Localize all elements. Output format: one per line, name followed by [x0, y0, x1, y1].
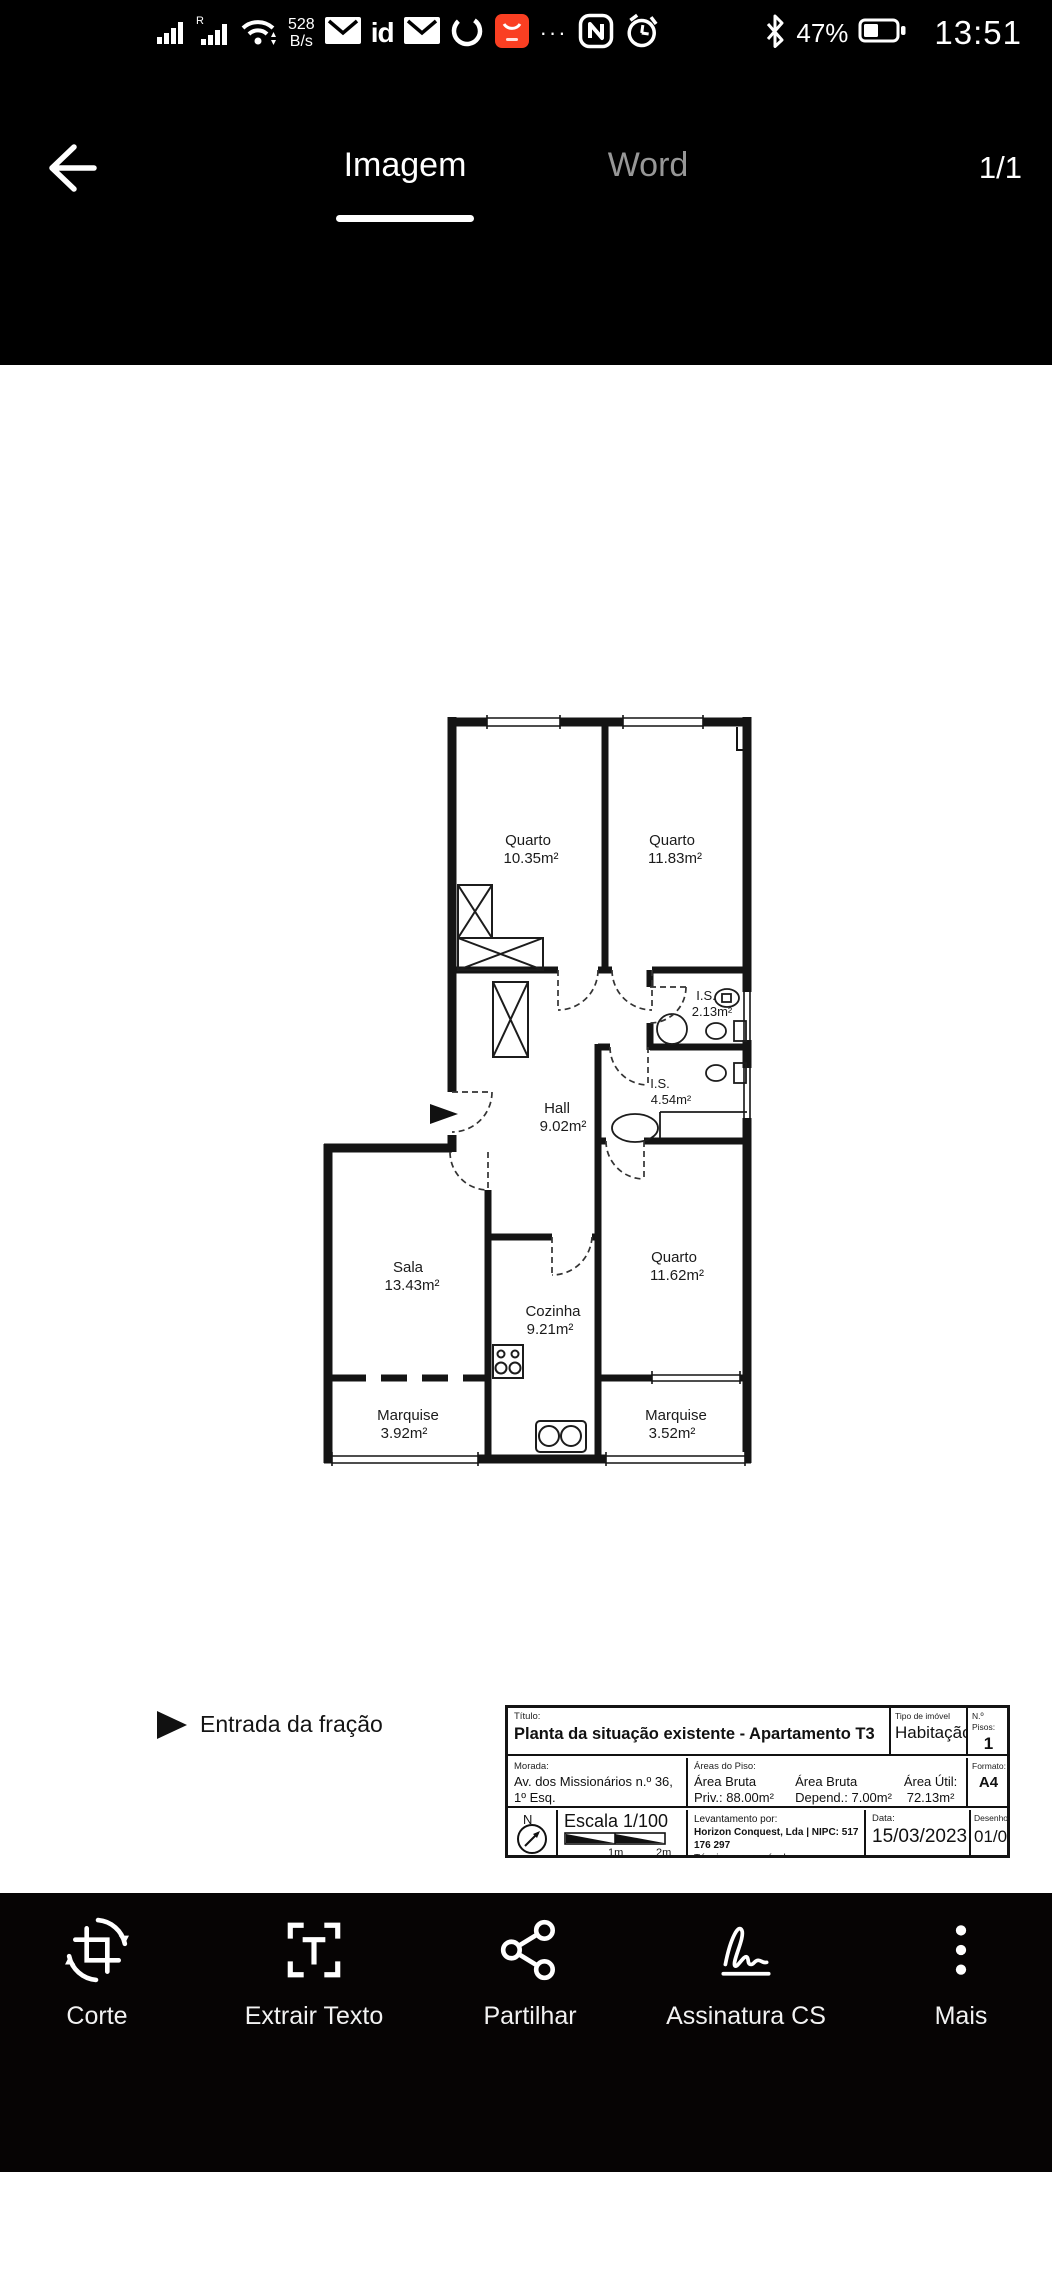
nfc-icon: [578, 13, 614, 54]
extract-text-button[interactable]: Extrair Texto: [209, 1917, 419, 2031]
crop-rotate-icon: [64, 1917, 130, 1983]
svg-text:R: R: [196, 15, 204, 27]
android-navigation-bar: [0, 2172, 1052, 2276]
entrance-legend-label: Entrada da fração: [200, 1711, 383, 1738]
crop-button[interactable]: Corte: [0, 1917, 202, 2031]
plan-title: Planta da situação existente - Apartamen…: [514, 1724, 884, 1744]
entrance-legend-icon: [155, 1710, 189, 1740]
data-cell: Data: 15/03/2023: [866, 1810, 971, 1856]
signature-icon: [713, 1917, 779, 1983]
title-block: Título: Planta da situação existente - A…: [505, 1705, 1010, 1858]
back-button[interactable]: [44, 140, 100, 201]
room-area: 9.21m²: [527, 1321, 574, 1338]
share-button[interactable]: Partilhar: [425, 1917, 635, 2031]
scale-text: Escala 1/100: [564, 1812, 680, 1831]
svg-text:2m: 2m: [656, 1847, 671, 1856]
more-notifications-icon: ···: [540, 20, 568, 46]
levantamento-cell: Levantamento por: Horizon Conquest, Lda …: [688, 1810, 866, 1856]
formato-cell: Formato: A4: [968, 1758, 1010, 1808]
room-area: 3.52m²: [649, 1425, 696, 1442]
room-label: Hall: [544, 1100, 570, 1117]
tab-imagem[interactable]: Imagem: [315, 146, 495, 185]
areas-cell: Áreas do Piso: Área BrutaPriv.: 88.00m² …: [688, 1758, 968, 1808]
id-app-icon: id: [371, 17, 394, 49]
active-tab-underline: [336, 215, 474, 222]
area-bruta-priv: Área BrutaPriv.: 88.00m²: [694, 1774, 795, 1806]
room-label: Quarto: [505, 832, 551, 849]
more-dots-icon: [928, 1917, 994, 1983]
more-button[interactable]: Mais: [856, 1917, 1052, 2031]
alarm-icon: [624, 13, 660, 54]
status-bar: R 528 B/s id: [0, 0, 1052, 66]
room-label: I.S.: [650, 1076, 670, 1091]
scale-bar: 1m 2m: [564, 1831, 682, 1856]
titulo-cell: Título: Planta da situação existente - A…: [508, 1708, 891, 1756]
app-header: R 528 B/s id: [0, 0, 1052, 365]
tipo-imovel-cell: Tipo de imóvel Habitação: [891, 1708, 968, 1756]
morada-cell: Morada: Av. dos Missionários n.º 36, 1º …: [508, 1758, 688, 1808]
clock-text: 13:51: [934, 14, 1022, 52]
data-rate: 528 B/s: [288, 16, 315, 50]
room-area: 3.92m²: [381, 1425, 428, 1442]
wifi-icon: [240, 15, 278, 52]
room-area: 10.35m²: [503, 850, 558, 867]
sync-icon: [450, 14, 484, 53]
entrance-arrow-icon: [430, 1104, 458, 1124]
back-arrow-icon: [44, 140, 100, 196]
escala-cell: Escala 1/100 1m 2m: [558, 1810, 688, 1856]
signal-icon: [156, 15, 186, 52]
aliexpress-app-icon: [494, 13, 530, 54]
bluetooth-icon: [764, 14, 786, 53]
mail-icon: [325, 17, 361, 49]
room-area: 11.83m²: [648, 850, 702, 867]
signature-button[interactable]: Assinatura CS: [641, 1917, 851, 2031]
signal2-roaming-icon: R: [196, 14, 230, 53]
north-cell: N: [508, 1810, 558, 1856]
north-compass-icon: N: [509, 1811, 555, 1856]
room-area: 13.43m²: [384, 1277, 439, 1294]
area-util: Área Útil:72.13m²: [900, 1774, 961, 1806]
floor-plan-drawing: Quarto 10.35m² Quarto 11.83m² I.S. 2.13m…: [300, 700, 770, 1480]
svg-text:1m: 1m: [608, 1847, 623, 1856]
room-label: Quarto: [649, 832, 695, 849]
room-label: Quarto: [651, 1249, 697, 1266]
extract-text-icon: [281, 1917, 347, 1983]
tab-word[interactable]: Word: [568, 146, 728, 185]
mail-icon: [404, 17, 440, 49]
room-label: Cozinha: [525, 1303, 581, 1320]
num-pisos-cell: N.º Pisos: 1: [968, 1708, 1010, 1756]
room-area: 11.62m²: [650, 1267, 704, 1284]
room-label: Marquise: [645, 1407, 707, 1424]
bottom-toolbar: Corte Extrair Texto Partilhar: [0, 1893, 1052, 2172]
room-area: 4.54m²: [651, 1092, 692, 1107]
room-label: I.S.: [696, 988, 716, 1003]
page-indicator: 1/1: [950, 150, 1022, 186]
phone-screen: R 528 B/s id: [0, 0, 1052, 2276]
desenho-cell: Desenho 01/01: [971, 1810, 1010, 1856]
battery-icon: [858, 15, 908, 51]
room-area: 2.13m²: [692, 1004, 733, 1019]
share-icon: [497, 1917, 563, 1983]
room-label: Sala: [393, 1259, 424, 1276]
room-area: 9.02m²: [540, 1118, 587, 1135]
battery-percent: 47%: [796, 18, 848, 49]
area-bruta-dep: Área BrutaDepend.: 7.00m²: [795, 1774, 900, 1806]
room-label: Marquise: [377, 1407, 439, 1424]
